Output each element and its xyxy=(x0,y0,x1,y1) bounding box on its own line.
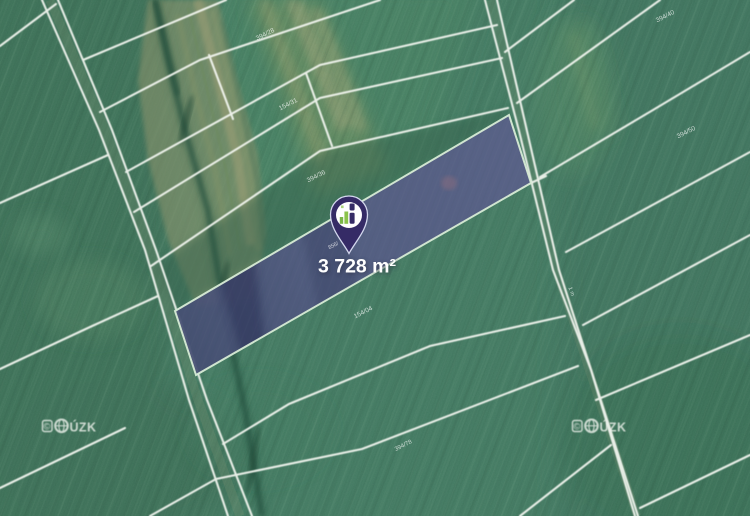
svg-text:ÚZK: ÚZK xyxy=(70,420,97,435)
svg-text:3 728 m²: 3 728 m² xyxy=(318,256,397,278)
svg-text:©: © xyxy=(44,422,51,432)
